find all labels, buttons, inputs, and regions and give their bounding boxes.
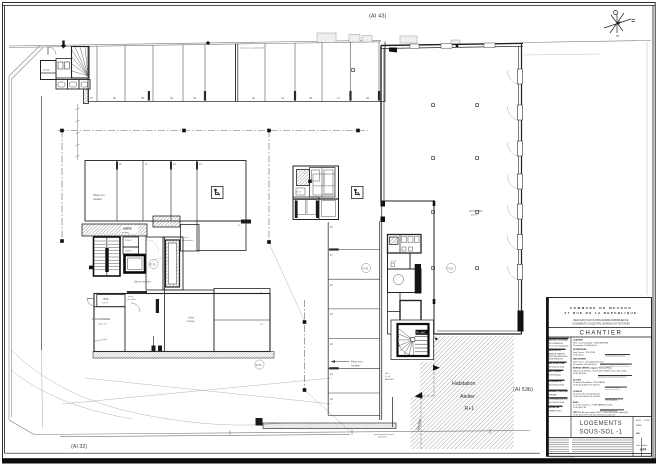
svg-text:480 m²: 480 m² [471,214,478,217]
svg-text:27 rue de la Republique: 27 rue de la Republique [549,345,569,348]
svg-text:VIDE O: VIDE O [125,251,132,253]
svg-text:SORTIE: SORTIE [123,228,132,231]
svg-text:lavable: lavable [352,364,361,368]
svg-text:ch. 2,00m: ch. 2,00m [127,299,136,301]
svg-text:BET FLUIDES: BET FLUIDES [549,371,562,373]
svg-text:ACTIVITES: ACTIVITES [469,209,483,213]
svg-text:(AI 43): (AI 43) [369,14,386,20]
svg-text:REALISATION D'UN PROGRAMME IMM: REALISATION D'UN PROGRAMME IMMOBILIER DE [573,319,628,322]
svg-text:CHAUFFERIE: CHAUFFERIE [92,317,110,321]
svg-text:Tel 01.46.17.00: Tel 01.46.17.00 [573,407,586,409]
svg-text:Tel 01.46.00: Tel 01.46.00 [573,355,583,357]
svg-text:PL.VAD: PL.VAD [416,331,425,335]
svg-text:VIDE: VIDE [103,299,109,301]
svg-text:Local: Local [183,237,189,239]
svg-text:15,2x m²: 15,2x m² [98,323,107,326]
svg-text:ECONOMISTE: ECONOMISTE [549,381,562,383]
svg-text:Tel chantier: 01.00.00.00.00: Tel chantier: 01.00.00.00.00 [573,344,596,347]
svg-text:Atelier: Atelier [460,394,475,400]
svg-text:A04: A04 [640,448,646,452]
svg-text:Tel 01.46.00.00 Fax 01.47.00.: Tel 01.46.00.00 Fax 01.47.00.47 [573,396,600,398]
svg-text:MACONNERIE: MACONNERIE [573,358,587,361]
svg-text:07.00: 07.00 [150,264,156,266]
svg-text:CHANTIER: CHANTIER [573,339,583,342]
svg-text:Place non: Place non [93,193,105,197]
svg-text:GEOMETRE: GEOMETRE [549,407,561,409]
svg-text:Tel 01.46.00.00.00: Tel 01.46.00.00.00 [549,367,565,369]
svg-text:lavable: lavable [94,197,103,201]
svg-text:ACCUEIL: ACCUEIL [573,378,582,381]
svg-text:parking: parking [122,232,129,234]
svg-text:R+1: R+1 [465,406,475,412]
svg-text:Poussettes: Poussettes [182,239,194,242]
svg-text:m: m [616,34,619,38]
svg-text:rampe acces parking 5%: rampe acces parking 5% [240,47,264,50]
svg-text:LOGEMENTS COLLECTIFS, BUREAUX: LOGEMENTS COLLECTIFS, BUREAUX ET ACTIVIT… [572,323,630,326]
svg-text:07.46: 07.46 [362,268,368,270]
svg-text:Tel 01.46.00.00.00: Tel 01.46.00.00.00 [549,402,565,404]
svg-text:07.24: 07.24 [391,261,397,263]
svg-text:(AI 53b): (AI 53b) [513,387,533,393]
svg-text:BUREAU VERITAS - Agence Tertre: BUREAU VERITAS - Agence Tertre de Paris [573,367,612,370]
svg-text:07.02: 07.02 [296,192,302,194]
svg-text:Place non: Place non [351,360,363,364]
svg-text:COMMUNE DE MEUDON: COMMUNE DE MEUDON [570,306,632,310]
svg-text:(AI 32): (AI 32) [71,444,87,450]
svg-text:Tel 01.46.00.00.00: Tel 01.46.00.00.00 [549,385,565,387]
svg-text:0,9 m²: 0,9 m² [102,301,108,304]
svg-text:acces: acces [128,296,133,298]
svg-text:EXPERT DPLG: EXPERT DPLG [549,411,563,413]
svg-text:alt 05.00m: alt 05.00m [378,436,387,439]
svg-text:CONSTRUCTION REF 10/04: CONSTRUCTION REF 10/04 [549,457,574,459]
svg-text:Sas de securite: Sas de securite [134,281,151,284]
svg-text:Habitation: Habitation [452,381,475,387]
svg-text:ENTREPRISES: ENTREPRISES [573,349,587,351]
svg-text:CHANTIER: CHANTIER [580,331,623,337]
svg-text:92190 MEUDON: 92190 MEUDON [549,359,564,361]
svg-text:ECH.: ECH. [636,420,642,422]
svg-text:IND: IND [636,433,640,435]
svg-text:Tel 01.46.00.00 Fax 01.46.00.: Tel 01.46.00.00 Fax 01.46.00.17 [573,385,600,387]
svg-text:2 roues: 2 roues [187,320,196,323]
svg-text:AMEX: AMEX [573,401,579,404]
svg-text:VIDE O: VIDE O [125,240,132,242]
svg-text:Tel chantier: 06.00.00.00.00: Tel chantier: 06.00.00.00.00 [573,363,596,366]
svg-text:VERITAS: VERITAS [549,394,558,397]
svg-text:Tel 01.46.00.17 Fax 01.46.17.: Tel 01.46.00.17 Fax 01.46.17.47 [573,415,600,417]
svg-text:27 RUE DE LA REPUBLIQUE: 27 RUE DE LA REPUBLIQUE [565,311,638,315]
svg-text:1/100: 1/100 [644,420,650,422]
svg-text:07.05: 07.05 [256,365,262,367]
svg-text:CONSULT: CONSULT [573,391,583,393]
svg-text:Tel 01.46.00.00: Tel 01.46.00.00 [573,373,586,375]
svg-text:(L.vu)*: (L.vu)* [385,376,391,378]
svg-text:07.26: 07.26 [447,268,453,270]
svg-text:DATE: DATE [636,424,642,427]
svg-text:LOGEMENTS: LOGEMENTS [580,421,622,427]
svg-text:BAS/TEH: BAS/TEH [385,378,394,381]
svg-text:92190 Meudon: 92190 Meudon [549,375,562,377]
svg-text:aménagement extérieur: aménagement extérieur [374,433,394,436]
svg-text:vrd.travaux@sol.fr: vrd.travaux@sol.fr [600,414,616,417]
svg-text:SOUS-SOL -1: SOUS-SOL -1 [579,429,622,435]
svg-text:BET STRUCTURE: BET STRUCTURE [549,363,566,365]
svg-text:07 U0: 07 U0 [43,69,50,72]
